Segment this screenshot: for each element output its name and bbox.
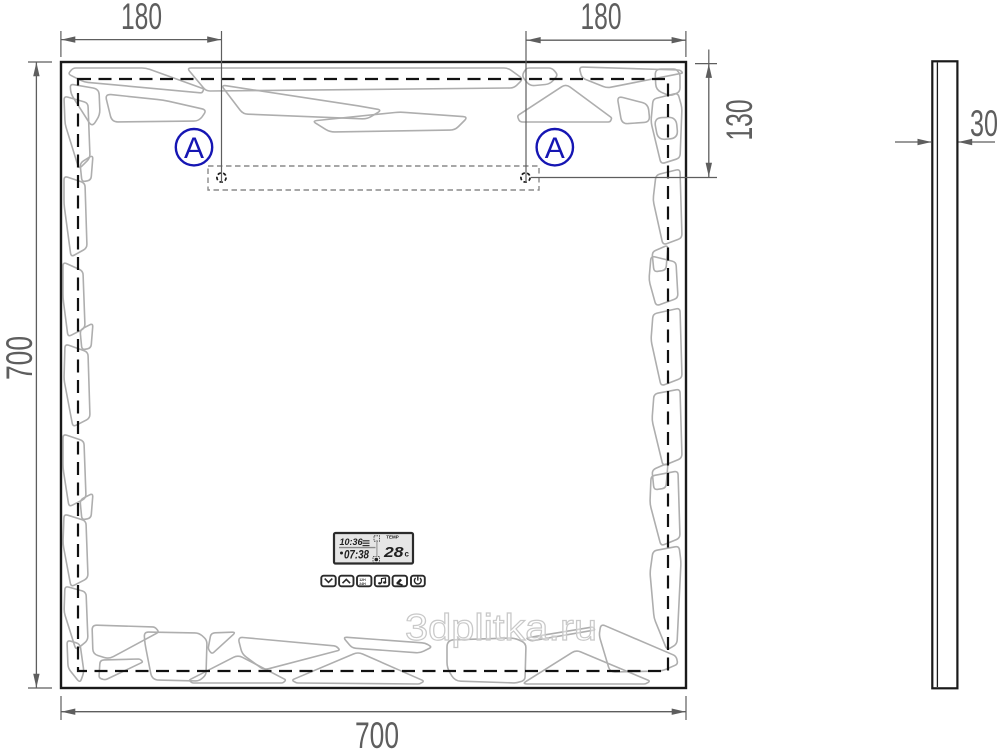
svg-text:700: 700 [0, 336, 40, 380]
svg-text:TEMP: TEMP [386, 535, 399, 540]
svg-text:130: 130 [719, 100, 760, 141]
svg-text:10:36: 10:36 [340, 537, 364, 547]
svg-text:c: c [405, 550, 410, 559]
svg-text:A: A [184, 132, 204, 165]
svg-text:700: 700 [355, 715, 399, 752]
svg-text:24H: 24H [359, 582, 366, 586]
svg-text:A: A [545, 132, 565, 165]
svg-text:07:38: 07:38 [344, 548, 369, 562]
svg-text:30: 30 [970, 103, 998, 144]
svg-text:3dplitka.ru: 3dplitka.ru [405, 607, 597, 648]
svg-text:28: 28 [383, 544, 404, 561]
svg-text:180: 180 [581, 0, 622, 37]
svg-text:180: 180 [121, 0, 162, 37]
